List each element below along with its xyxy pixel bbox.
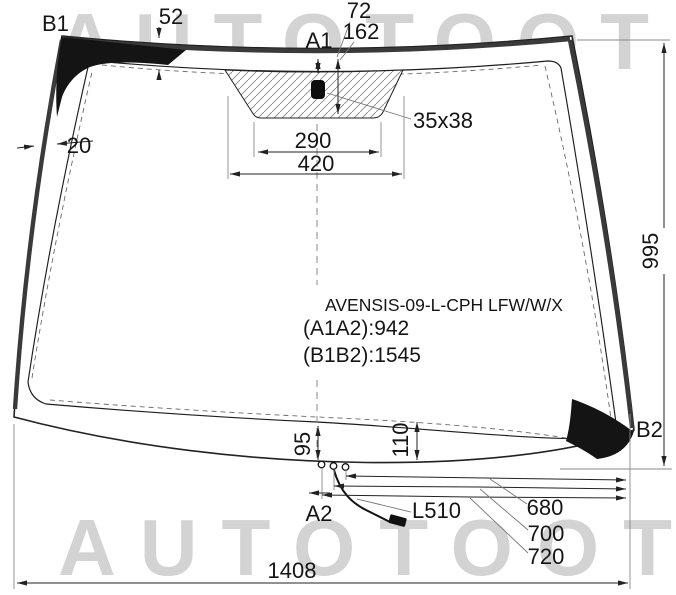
dim-110-label: 110 <box>388 422 413 457</box>
point-a2-label: A2 <box>306 501 333 526</box>
windshield-diagram-page: AUTOTOOT AUTOTOOT <box>0 0 676 595</box>
wire-connector <box>388 514 407 527</box>
point-a1-label: A1 <box>306 28 333 53</box>
dim-l510-label: L510 <box>412 498 461 523</box>
dim-290-label: 290 <box>295 128 332 153</box>
dim-680-label: 680 <box>527 495 564 520</box>
dim-720-label: 720 <box>528 544 565 569</box>
wire-length-label: L510 <box>357 498 461 523</box>
part-code: AVENSIS-09-L-CPH LFW/W/X <box>325 295 563 315</box>
point-b1-label: B1 <box>42 11 69 36</box>
point-a2: A2 <box>306 493 333 526</box>
windshield-diagram: 52 72 162 A1 35x38 20 <box>0 0 676 595</box>
point-b2-label: B2 <box>636 417 663 442</box>
dim-52-label: 52 <box>159 4 183 29</box>
dim-95-label: 95 <box>290 432 315 456</box>
dimension-connector-distances: 680 700 720 <box>322 469 626 569</box>
dim-420-label: 420 <box>298 151 335 176</box>
mirror-sensor-pad <box>311 80 325 99</box>
dim-35x38-label: 35x38 <box>413 108 473 133</box>
dim-700-label: 700 <box>528 521 565 546</box>
dim-1408-label: 1408 <box>268 558 317 583</box>
part-dim-b1b2: (B1B2):1545 <box>303 344 421 367</box>
dim-995-label: 995 <box>638 233 663 270</box>
dim-162-label: 162 <box>343 19 380 44</box>
dim-20-label: 20 <box>67 133 91 158</box>
part-dim-a1a2: (A1A2):942 <box>303 317 409 340</box>
